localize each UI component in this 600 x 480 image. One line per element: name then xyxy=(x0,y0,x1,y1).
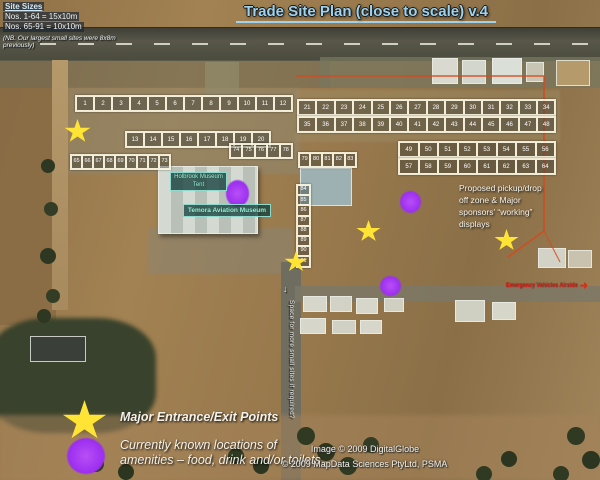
site-sizes-line2: Nos. 65-91 = 10x10m xyxy=(3,22,84,31)
right-arrow-icon: ➜ xyxy=(580,283,588,289)
site-box-82: 82 xyxy=(333,153,344,167)
site-box-88: 88 xyxy=(297,226,310,236)
site-sizes-heading: Site Sizes xyxy=(3,2,44,11)
site-box-55: 55 xyxy=(516,142,536,157)
site-box-25: 25 xyxy=(372,100,390,115)
site-box-2: 2 xyxy=(94,96,112,111)
site-box-44: 44 xyxy=(464,117,482,132)
site-box-22: 22 xyxy=(316,100,334,115)
site-box-41: 41 xyxy=(408,117,426,132)
shed xyxy=(300,318,326,334)
credit-mapdata: © 2009 MapData Sciences PtyLtd, PSMA xyxy=(272,459,457,469)
site-box-9: 9 xyxy=(220,96,238,111)
site-column-84-91: 8485868788899091 xyxy=(296,184,311,268)
site-row-79-83: 7980818283 xyxy=(298,152,357,168)
site-box-84: 84 xyxy=(297,185,310,195)
site-box-70: 70 xyxy=(126,155,137,169)
satellite-dirt-left xyxy=(0,55,56,325)
site-box-28: 28 xyxy=(427,100,445,115)
site-box-47: 47 xyxy=(519,117,537,132)
space-for-sites-note: Space for more small sites if required? xyxy=(288,300,295,419)
site-box-39: 39 xyxy=(372,117,390,132)
site-box-1: 1 xyxy=(76,96,94,111)
site-box-51: 51 xyxy=(438,142,458,157)
museum-main-label: Temora Aviation Museum xyxy=(183,204,271,217)
site-box-32: 32 xyxy=(500,100,518,115)
site-box-68: 68 xyxy=(104,155,115,169)
site-box-57: 57 xyxy=(399,159,419,174)
site-row-49-56: 4950515253545556 xyxy=(398,141,556,158)
site-box-48: 48 xyxy=(537,117,555,132)
trade-site-plan-map: 123456789101112 1314151617181920 2122232… xyxy=(0,0,600,480)
site-box-34: 34 xyxy=(537,100,555,115)
site-box-17: 17 xyxy=(198,132,216,147)
shed xyxy=(384,298,404,312)
shed xyxy=(332,320,356,334)
building xyxy=(556,60,590,86)
site-row-35-48: 3536373839404142434445464748 xyxy=(297,116,556,133)
site-box-87: 87 xyxy=(297,216,310,226)
shed xyxy=(492,302,516,320)
site-box-80: 80 xyxy=(310,153,321,167)
site-box-53: 53 xyxy=(477,142,497,157)
site-box-36: 36 xyxy=(316,117,334,132)
site-box-11: 11 xyxy=(256,96,274,111)
site-sizes-note: (NB. Our largest small sites were 8x8m p… xyxy=(3,35,123,50)
site-box-83: 83 xyxy=(345,153,356,167)
shed xyxy=(538,248,566,268)
site-box-42: 42 xyxy=(427,117,445,132)
site-box-66: 66 xyxy=(82,155,93,169)
amenity-marker-museum xyxy=(226,180,249,207)
building xyxy=(30,336,86,362)
site-sizes-line1: Nos. 1-64 = 15x10m xyxy=(3,12,79,21)
site-box-30: 30 xyxy=(464,100,482,115)
site-box-16: 16 xyxy=(180,132,198,147)
amenity-marker-east xyxy=(400,191,421,213)
shed xyxy=(568,250,592,268)
page-title: Trade Site Plan (close to scale) v.4 xyxy=(236,3,496,23)
site-box-61: 61 xyxy=(477,159,497,174)
site-box-72: 72 xyxy=(148,155,159,169)
site-box-77: 77 xyxy=(267,144,279,158)
site-box-49: 49 xyxy=(399,142,419,157)
credit-digitalglobe: Image © 2009 DigitalGlobe xyxy=(300,444,430,454)
site-box-24: 24 xyxy=(353,100,371,115)
site-box-10: 10 xyxy=(238,96,256,111)
shed xyxy=(303,296,327,312)
airside-note: Emergency Vehicles Airside ➜ xyxy=(506,283,588,289)
site-box-6: 6 xyxy=(166,96,184,111)
site-box-21: 21 xyxy=(298,100,316,115)
site-box-33: 33 xyxy=(519,100,537,115)
shed xyxy=(330,296,352,312)
site-box-79: 79 xyxy=(299,153,310,167)
site-box-65: 65 xyxy=(71,155,82,169)
airside-note-text: Emergency Vehicles Airside xyxy=(506,283,578,289)
shed xyxy=(356,298,378,314)
site-box-14: 14 xyxy=(144,132,162,147)
site-box-56: 56 xyxy=(536,142,556,157)
site-box-12: 12 xyxy=(274,96,292,111)
road-west xyxy=(52,60,68,310)
site-box-3: 3 xyxy=(112,96,130,111)
site-box-86: 86 xyxy=(297,205,310,215)
shed xyxy=(455,300,485,322)
site-row-57-64: 5758596061626364 xyxy=(398,158,556,175)
site-box-90: 90 xyxy=(297,246,310,256)
site-box-4: 4 xyxy=(130,96,148,111)
site-row-1-12: 123456789101112 xyxy=(75,95,293,112)
site-box-37: 37 xyxy=(335,117,353,132)
site-sizes-key: Site Sizes Nos. 1-64 = 15x10m Nos. 65-91… xyxy=(3,2,153,50)
building xyxy=(462,60,486,84)
site-box-43: 43 xyxy=(445,117,463,132)
site-box-13: 13 xyxy=(126,132,144,147)
proposed-zone-note: Proposed pickup/drop off zone & Major sp… xyxy=(459,183,552,231)
site-box-58: 58 xyxy=(419,159,439,174)
site-box-78: 78 xyxy=(280,144,292,158)
site-box-15: 15 xyxy=(162,132,180,147)
site-box-50: 50 xyxy=(419,142,439,157)
site-box-67: 67 xyxy=(93,155,104,169)
site-box-74: 74 xyxy=(230,144,242,158)
site-box-27: 27 xyxy=(408,100,426,115)
site-box-62: 62 xyxy=(497,159,517,174)
site-box-7: 7 xyxy=(184,96,202,111)
museum-tent-label: Holbrook Museum Tent xyxy=(170,172,227,191)
amenity-marker-south xyxy=(380,276,401,296)
site-box-73: 73 xyxy=(159,155,170,169)
site-box-85: 85 xyxy=(297,195,310,205)
site-box-35: 35 xyxy=(298,117,316,132)
legend-amenity-icon xyxy=(67,438,105,474)
down-arrow-icon: ↓ xyxy=(283,284,288,294)
site-row-65-73: 656667686970717273 xyxy=(70,154,171,170)
site-box-89: 89 xyxy=(297,236,310,246)
site-box-76: 76 xyxy=(255,144,267,158)
shed xyxy=(360,320,382,334)
site-box-5: 5 xyxy=(148,96,166,111)
site-box-31: 31 xyxy=(482,100,500,115)
site-box-69: 69 xyxy=(115,155,126,169)
site-box-46: 46 xyxy=(500,117,518,132)
site-box-23: 23 xyxy=(335,100,353,115)
site-box-29: 29 xyxy=(445,100,463,115)
site-box-45: 45 xyxy=(482,117,500,132)
site-box-63: 63 xyxy=(516,159,536,174)
site-row-21-34: 2122232425262728293031323334 xyxy=(297,99,556,116)
building xyxy=(492,58,522,84)
site-box-40: 40 xyxy=(390,117,408,132)
building xyxy=(526,62,544,82)
site-box-52: 52 xyxy=(458,142,478,157)
site-box-26: 26 xyxy=(390,100,408,115)
site-box-8: 8 xyxy=(202,96,220,111)
taxiway-band-left xyxy=(0,60,330,88)
site-box-59: 59 xyxy=(438,159,458,174)
site-box-81: 81 xyxy=(322,153,333,167)
site-box-64: 64 xyxy=(536,159,556,174)
apron-museum xyxy=(148,228,293,274)
site-box-38: 38 xyxy=(353,117,371,132)
site-box-75: 75 xyxy=(242,144,254,158)
site-row-74-78: 7475767778 xyxy=(229,143,293,159)
site-box-71: 71 xyxy=(137,155,148,169)
site-box-54: 54 xyxy=(497,142,517,157)
building xyxy=(432,58,458,84)
legend-entrance-label: Major Entrance/Exit Points xyxy=(120,410,278,424)
site-box-60: 60 xyxy=(458,159,478,174)
